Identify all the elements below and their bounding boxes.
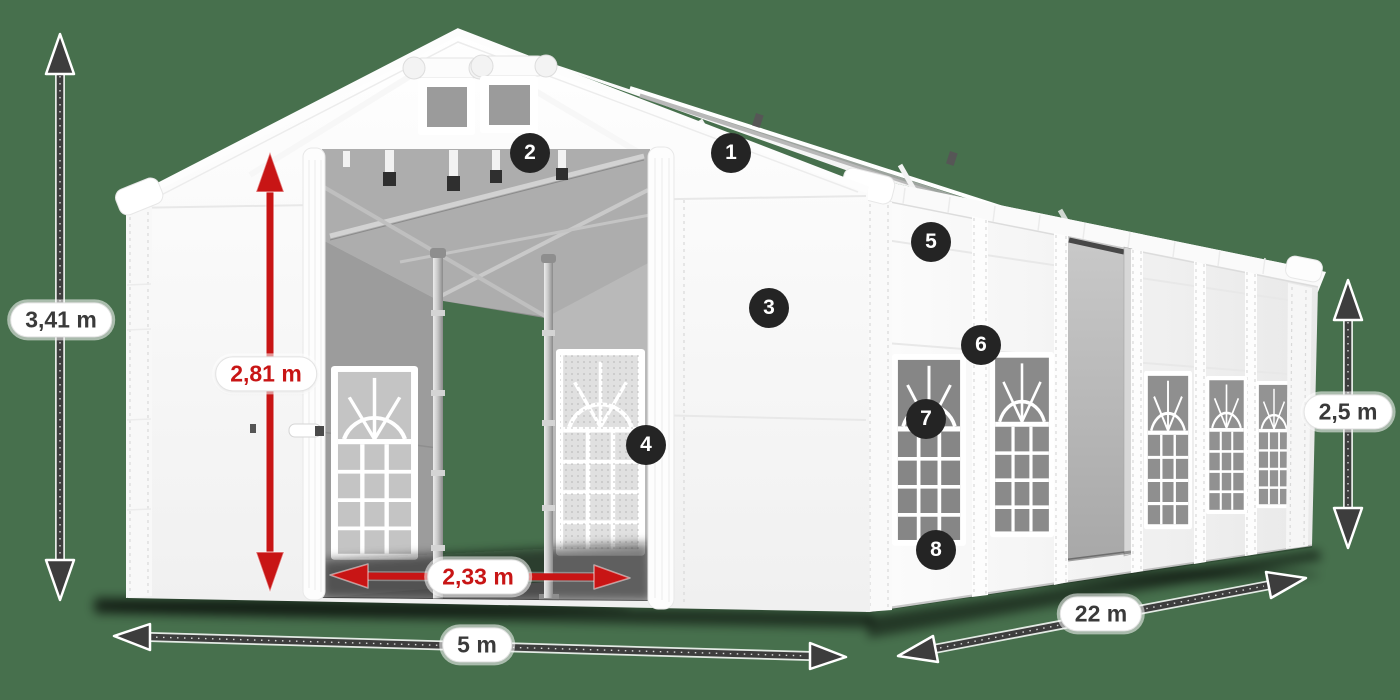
callout-badge-6: 6 bbox=[961, 325, 1001, 365]
side-window-1 bbox=[892, 354, 966, 546]
dimension-label-wall-height: 2,5 m bbox=[1304, 394, 1393, 429]
tent-drawing bbox=[0, 0, 1400, 700]
side-window-4 bbox=[1206, 376, 1247, 514]
through-view bbox=[437, 300, 545, 590]
dimension-label-side-length: 22 m bbox=[1060, 596, 1142, 631]
callout-badge-2: 2 bbox=[510, 133, 550, 173]
callout-badge-3: 3 bbox=[749, 288, 789, 328]
callout-number: 7 bbox=[920, 407, 932, 431]
callout-badge-4: 4 bbox=[626, 425, 666, 465]
dimension-label-entrance-height: 2,81 m bbox=[215, 356, 317, 391]
callout-badge-5: 5 bbox=[911, 222, 951, 262]
gable-vent-windows bbox=[403, 55, 557, 135]
callout-number: 8 bbox=[930, 538, 942, 562]
side-door-opening bbox=[1068, 236, 1132, 560]
callout-number: 3 bbox=[763, 296, 775, 320]
callout-number: 6 bbox=[975, 333, 987, 357]
tent-dimensions-illustration: 3,41 m 2,81 m 2,33 m 5 m 22 m 2,5 m 1 2 … bbox=[0, 0, 1400, 700]
dimension-label-entrance-width: 2,33 m bbox=[427, 559, 529, 594]
callout-badge-8: 8 bbox=[916, 530, 956, 570]
callout-number: 1 bbox=[725, 141, 737, 165]
front-entrance-opening bbox=[322, 149, 652, 607]
callout-number: 2 bbox=[524, 141, 536, 165]
side-window-3 bbox=[1144, 371, 1192, 529]
callout-badge-7: 7 bbox=[906, 399, 946, 439]
callout-number: 4 bbox=[640, 433, 652, 457]
dimension-label-total-height: 3,41 m bbox=[10, 302, 112, 337]
interior-window-left bbox=[331, 366, 418, 560]
dimension-label-front-width: 5 m bbox=[442, 627, 512, 662]
side-window-2 bbox=[990, 352, 1054, 537]
callout-badge-1: 1 bbox=[711, 133, 751, 173]
callout-number: 5 bbox=[925, 230, 937, 254]
